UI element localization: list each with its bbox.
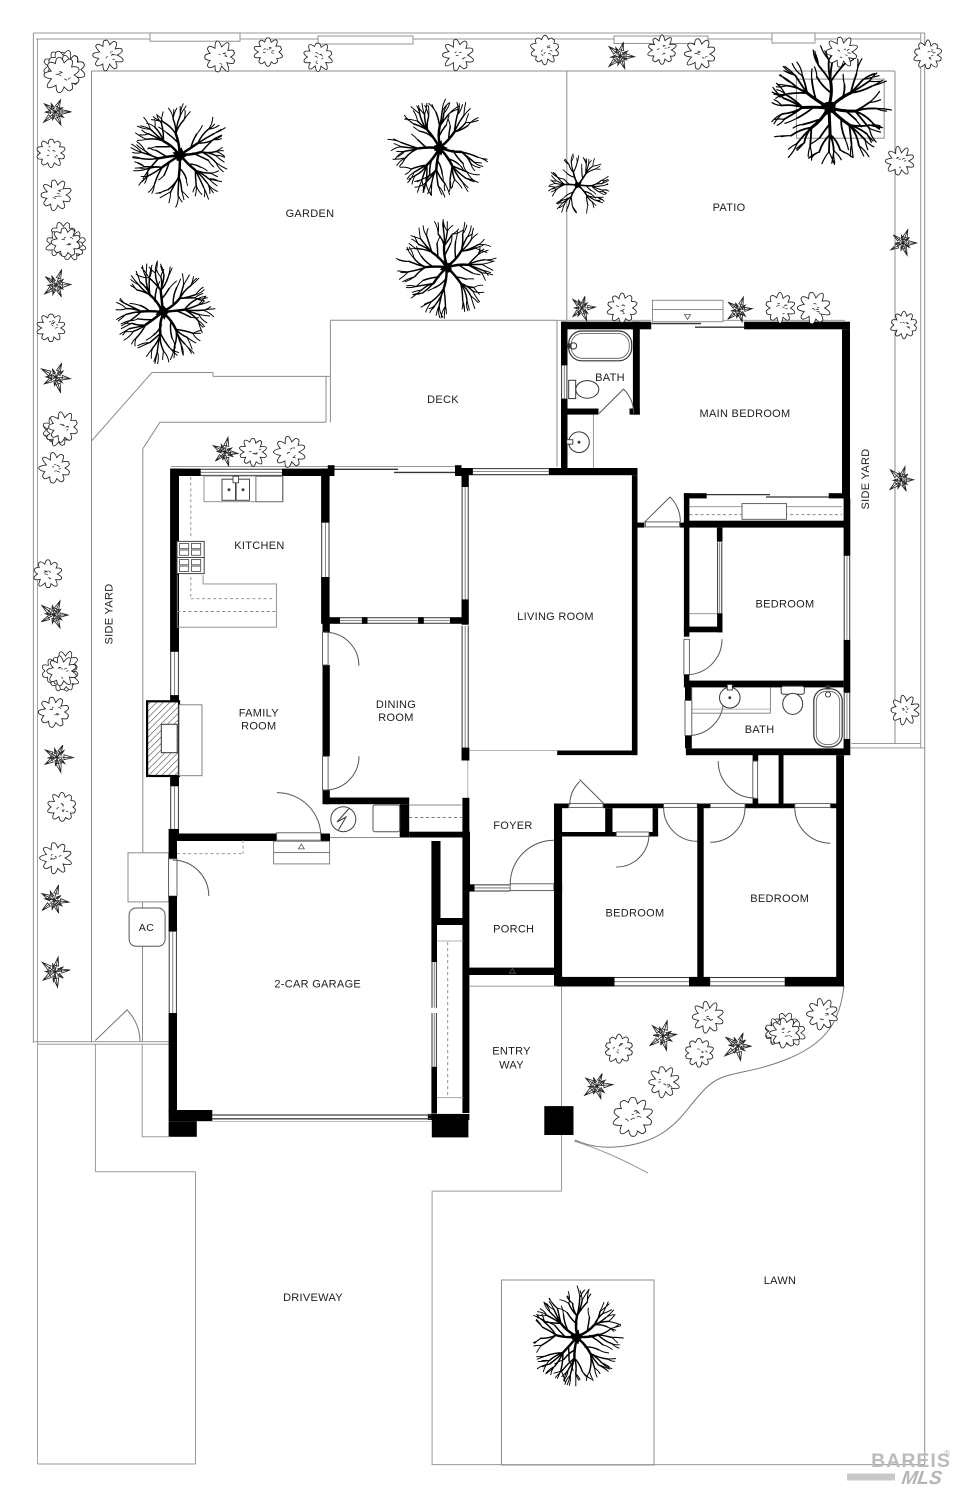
svg-text:®: ® [944, 1448, 951, 1458]
svg-text:BEDROOM: BEDROOM [750, 893, 809, 905]
svg-text:PATIO: PATIO [713, 202, 746, 214]
svg-text:DRIVEWAY: DRIVEWAY [283, 1292, 343, 1304]
svg-text:BEDROOM: BEDROOM [606, 907, 665, 919]
svg-text:LIVING ROOM: LIVING ROOM [517, 611, 594, 623]
svg-text:LAWN: LAWN [764, 1275, 797, 1287]
svg-text:MLS: MLS [900, 1468, 943, 1489]
svg-text:BEDROOM: BEDROOM [756, 599, 815, 611]
svg-text:ENTRY: ENTRY [492, 1046, 531, 1058]
svg-text:AC: AC [139, 922, 154, 934]
svg-text:PORCH: PORCH [493, 923, 534, 935]
svg-text:DECK: DECK [427, 394, 459, 406]
svg-text:ROOM: ROOM [378, 712, 413, 724]
svg-text:GARDEN: GARDEN [286, 208, 335, 220]
svg-text:BATH: BATH [745, 724, 775, 736]
svg-text:DINING: DINING [376, 699, 416, 711]
svg-text:BATH: BATH [595, 372, 625, 384]
svg-text:FOYER: FOYER [493, 820, 532, 832]
svg-text:2-CAR GARAGE: 2-CAR GARAGE [274, 979, 361, 991]
svg-text:FAMILY: FAMILY [239, 708, 279, 720]
svg-text:KITCHEN: KITCHEN [234, 540, 284, 552]
svg-text:MAIN BEDROOM: MAIN BEDROOM [700, 408, 791, 420]
svg-text:SIDE YARD: SIDE YARD [860, 449, 872, 510]
svg-text:ROOM: ROOM [241, 721, 276, 733]
svg-text:SIDE YARD: SIDE YARD [104, 584, 116, 645]
svg-text:WAY: WAY [499, 1060, 524, 1072]
